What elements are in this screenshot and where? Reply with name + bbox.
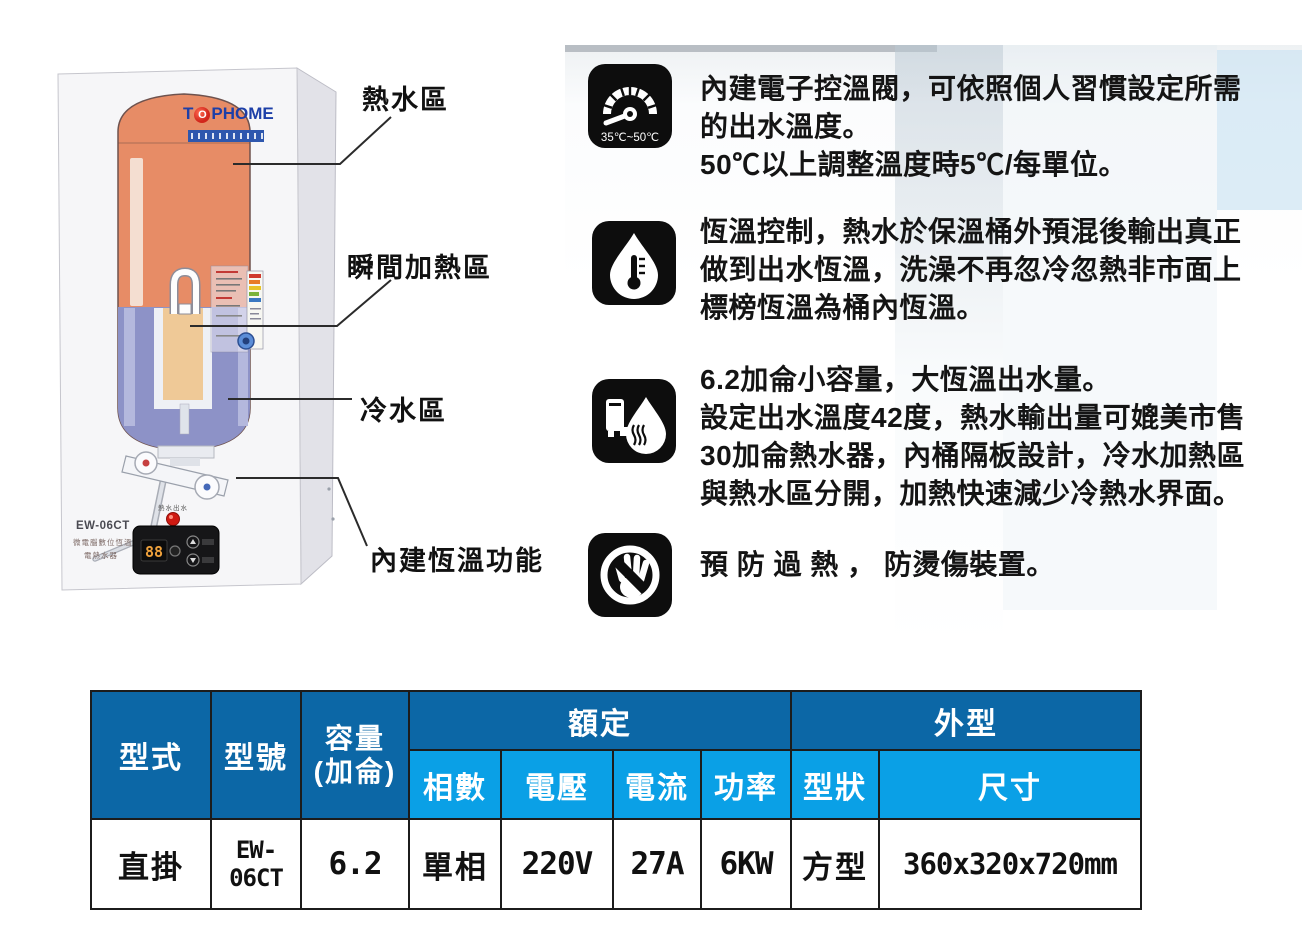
logo-banner — [188, 130, 264, 142]
header-capacity-line1: 容量 — [302, 722, 408, 755]
no-touch-icon — [588, 533, 672, 617]
tank-base-nub — [170, 458, 200, 466]
feature-line: 的出水溫度。 — [700, 108, 1260, 146]
tank-base — [158, 446, 214, 458]
control-panel: 88 — [133, 526, 219, 574]
callout-built-in-thermostat: 內建恆溫功能 — [370, 539, 544, 578]
feature-3-text: 6.2加侖小容量，大恆溫出水量。 設定出水溫度42度，熱水輸出量可媲美市售 30… — [700, 361, 1260, 513]
cell-voltage: 220V — [501, 819, 613, 909]
droplet-thermometer-icon — [592, 221, 676, 305]
cell-power: 6KW — [701, 819, 791, 909]
feature-4-text: 預 防 過 熱 ， 防燙傷裝置。 — [700, 546, 1260, 584]
indicator-light — [167, 513, 180, 526]
panel-caption-line2: 電熱水器 — [84, 550, 118, 561]
header-dimensions: 尺寸 — [879, 750, 1141, 819]
feature-line: 做到出水恆溫，洗澡不再忽冷忽熱非市面上 — [700, 251, 1260, 289]
logo-letters-phome: PHOME — [211, 104, 273, 123]
panel-caption-line1: 微電腦數位恆溫 — [73, 537, 133, 548]
callout-hot-water-zone: 熱水區 — [362, 78, 449, 117]
callout-instant-heating-zone: 瞬間加熱區 — [347, 246, 492, 285]
spec-table: 型式 型號 容量 (加侖) 額定 外型 相數 電壓 電流 功率 型狀 尺寸 直掛… — [90, 690, 1142, 910]
background-top-strip — [565, 45, 937, 52]
header-voltage: 電壓 — [501, 750, 613, 819]
cell-capacity: 6.2 — [301, 819, 409, 909]
cell-shape: 方型 — [791, 819, 879, 909]
header-type: 型式 — [91, 691, 211, 819]
product-spec-page: 88 TOPHOME EW-06CT 微電腦數位恆溫 電熱水器 熱水出水 熱水區… — [0, 0, 1308, 946]
header-model: 型號 — [211, 691, 301, 819]
header-current: 電流 — [613, 750, 701, 819]
feature-line: 恆溫控制，熱水於保溫桶外預混後輸出真正 — [700, 213, 1260, 251]
feature-line: 6.2加侖小容量，大恆溫出水量。 — [700, 361, 1260, 399]
cell-dimensions: 360x320x720mm — [879, 819, 1141, 909]
feature-line: 標榜恆溫為桶內恆溫。 — [700, 289, 1260, 327]
header-shape: 型狀 — [791, 750, 879, 819]
header-exterior: 外型 — [791, 691, 1141, 750]
cell-type: 直掛 — [91, 819, 211, 909]
header-power: 功率 — [701, 750, 791, 819]
model-label: EW-06CT — [76, 520, 130, 532]
feature-2-text: 恆溫控制，熱水於保溫桶外預混後輸出真正 做到出水恆溫，洗澡不再忽冷忽熱非市面上 … — [700, 213, 1260, 327]
power-button — [170, 546, 180, 556]
cell-current: 27A — [613, 819, 701, 909]
header-capacity-line2: (加侖) — [302, 755, 408, 788]
header-phase: 相數 — [409, 750, 501, 819]
indicator-caption: 熱水出水 — [158, 502, 188, 512]
feature-line: 設定出水溫度42度，熱水輸出量可媲美市售 — [700, 399, 1260, 437]
logo-red-o: O — [194, 107, 210, 123]
cell-phase: 單相 — [409, 819, 501, 909]
feature-line: 50℃以上調整溫度時5℃/每單位。 — [700, 146, 1260, 184]
brand-logo: TOPHOME — [183, 104, 274, 124]
tank-hot-water-icon — [592, 379, 676, 463]
header-capacity: 容量 (加侖) — [301, 691, 409, 819]
feature-1-text: 內建電子控溫閥，可依照個人習慣設定所需 的出水溫度。 50℃以上調整溫度時5℃/… — [700, 70, 1260, 184]
feature-line: 與熱水區分開，加熱快速減少冷熱水界面。 — [700, 475, 1260, 513]
callout-cold-water-zone: 冷水區 — [360, 389, 447, 428]
gauge-range-caption: 35℃~50℃ — [601, 132, 659, 144]
cell-model: EW-06CT — [211, 819, 301, 909]
temperature-gauge-icon: 35℃~50℃ — [588, 64, 672, 148]
tank-cutaway — [118, 94, 263, 450]
display-digits: 88 — [145, 543, 163, 561]
feature-line: 內建電子控溫閥，可依照個人習慣設定所需 — [700, 70, 1260, 108]
logo-letter-t: T — [183, 104, 193, 123]
feature-line: 預 防 過 熱 ， 防燙傷裝置。 — [700, 546, 1260, 584]
feature-line: 30加侖熱水器，內桶隔板設計，冷水加熱區 — [700, 437, 1260, 475]
header-rated: 額定 — [409, 691, 791, 750]
